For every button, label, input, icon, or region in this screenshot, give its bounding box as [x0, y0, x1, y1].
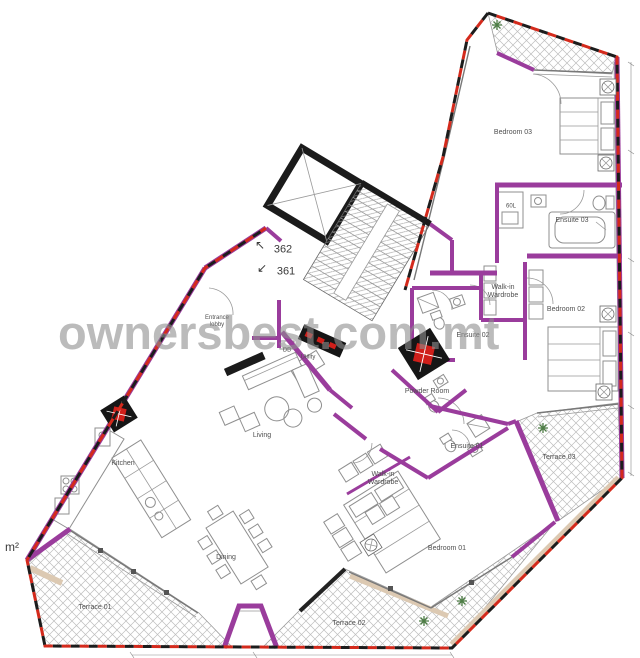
- kitchen-island: [112, 440, 191, 538]
- terrace-top-right-area: [488, 13, 616, 74]
- ensuite-03-fixtures: [498, 192, 615, 248]
- bed-bedroom-02: [529, 270, 618, 391]
- kitchen-counter: [52, 428, 124, 529]
- dining-table: [187, 493, 287, 603]
- bed-bedroom-03: [560, 98, 618, 154]
- bed-bedroom-01: [322, 471, 441, 587]
- watermark: ownersbest.com.mt: [58, 305, 499, 360]
- tan-wall-strip: [452, 478, 619, 645]
- floor-plan-page: Bedroom 03Ensuite 0360LWalk-in WardrobeB…: [0, 0, 640, 658]
